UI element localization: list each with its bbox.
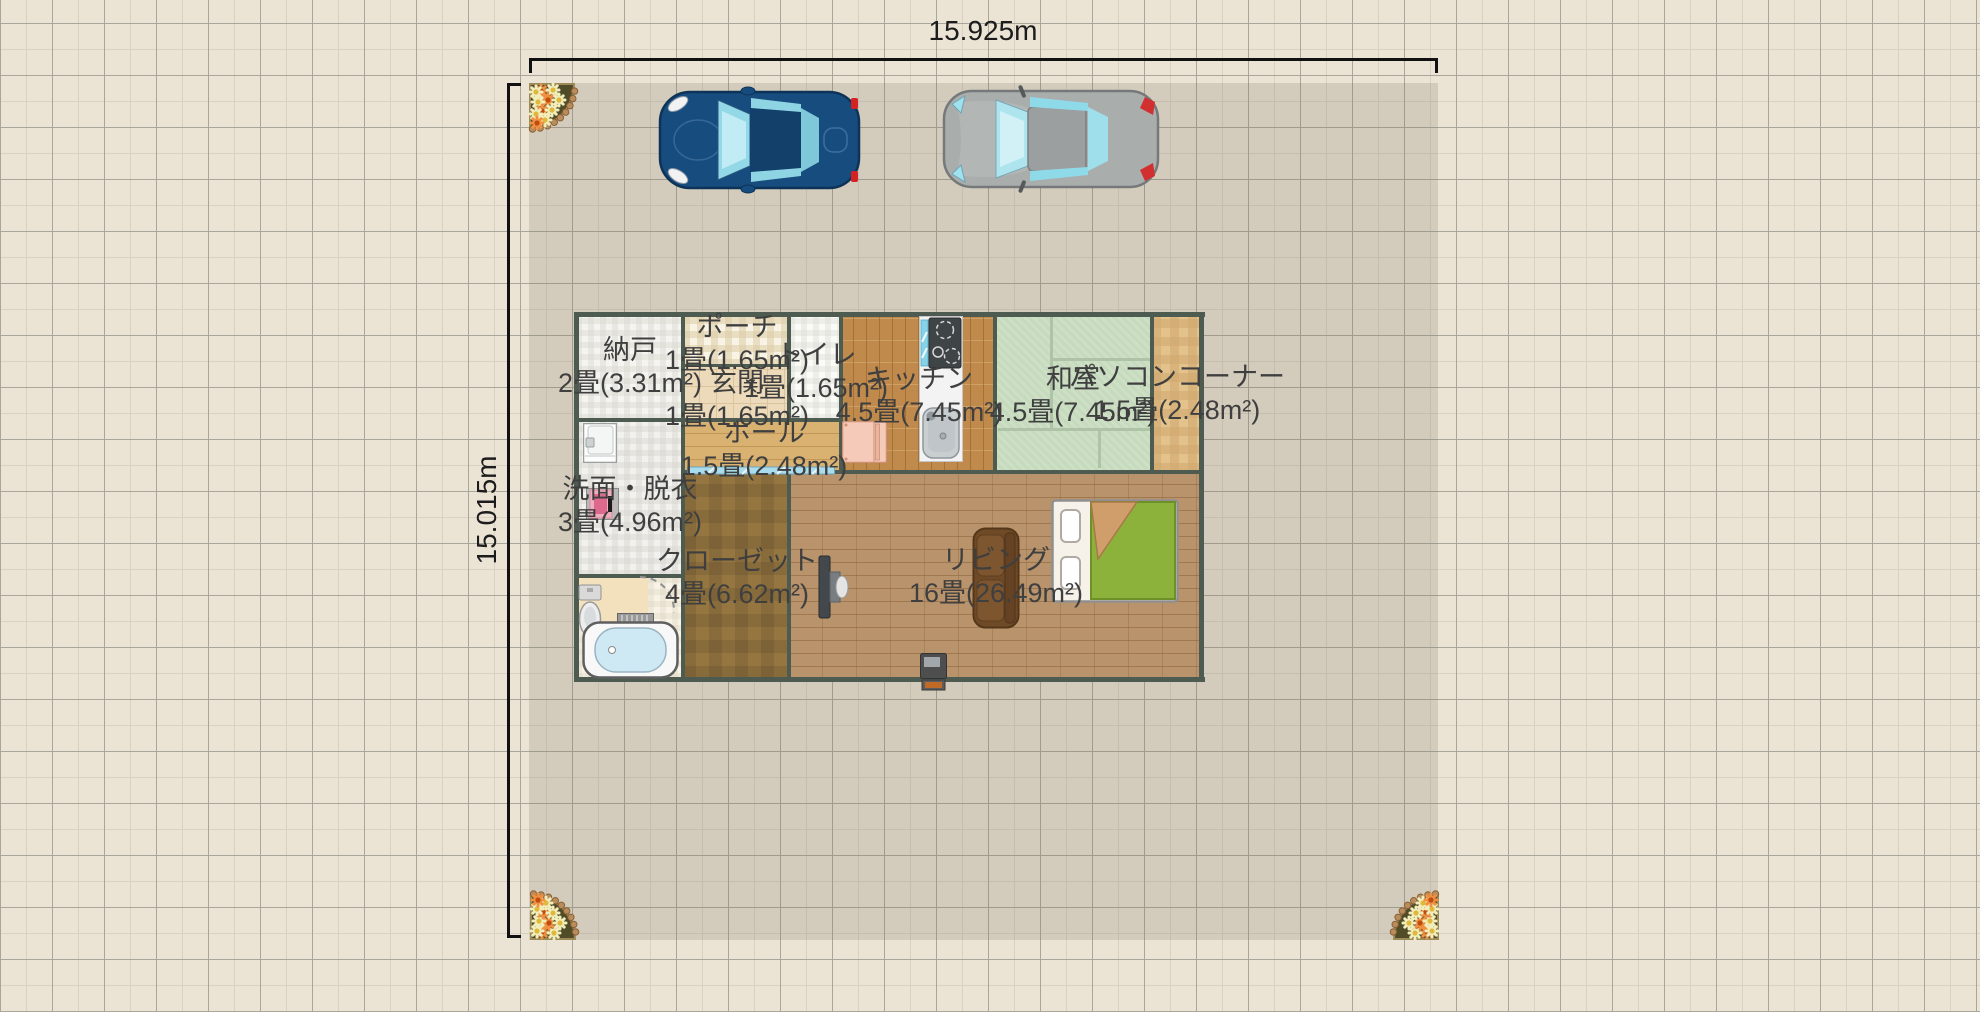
tv[interactable]	[817, 554, 849, 620]
dimension-line-left	[507, 83, 510, 938]
room-name: クローゼット	[656, 545, 818, 578]
room-label-pc-corner: パソコンコーナー 1.5畳(2.48m²)	[1069, 361, 1285, 427]
room-area: 3畳(4.96m²)	[558, 506, 702, 539]
dimension-tick	[507, 935, 521, 938]
dimension-tick	[507, 83, 521, 86]
room-name: キッチン	[836, 363, 1003, 396]
room-area: 1.5畳(2.48m²)	[681, 450, 848, 483]
room-area: 4畳(6.62m²)	[656, 578, 818, 611]
room-area: 16畳(26.49m²)	[909, 577, 1083, 610]
room-name: ホール	[681, 417, 848, 450]
dimension-tick	[1435, 58, 1438, 73]
car-gray[interactable]	[942, 83, 1160, 195]
room-label-living: リビング 16畳(26.49m²)	[909, 544, 1083, 610]
flower-bed[interactable]	[530, 890, 580, 940]
room-name: リビング	[909, 544, 1083, 577]
stove[interactable]	[920, 653, 948, 691]
room-name: 洗面・脱衣	[558, 473, 702, 506]
tatami-line	[1098, 431, 1101, 468]
dimension-line-top	[529, 58, 1438, 61]
room-label-kitchen: キッチン 4.5畳(7.45m²)	[836, 363, 1003, 429]
room-name: 玄関	[665, 367, 809, 400]
flower-bed[interactable]	[529, 83, 579, 133]
dimension-width-label: 15.925m	[929, 15, 1038, 47]
dimension-tick	[529, 58, 532, 73]
flower-bed[interactable]	[1389, 890, 1439, 940]
dimension-height-label: 15.015m	[471, 456, 503, 565]
room-label-closet: クローゼット 4畳(6.62m²)	[656, 545, 818, 611]
room-name: パソコンコーナー	[1069, 361, 1285, 394]
car-blue[interactable]	[658, 85, 862, 195]
room-label-washroom: 洗面・脱衣 3畳(4.96m²)	[558, 473, 702, 539]
floor-plan-canvas[interactable]: 15.925m 15.015m	[0, 0, 1980, 1012]
washbasin[interactable]	[583, 423, 617, 463]
room-area: 4.5畳(7.45m²)	[836, 396, 1003, 429]
room-area: 1.5畳(2.48m²)	[1069, 394, 1285, 427]
bathtub[interactable]	[582, 621, 679, 679]
room-label-hall: ホール 1.5畳(2.48m²)	[681, 417, 848, 483]
